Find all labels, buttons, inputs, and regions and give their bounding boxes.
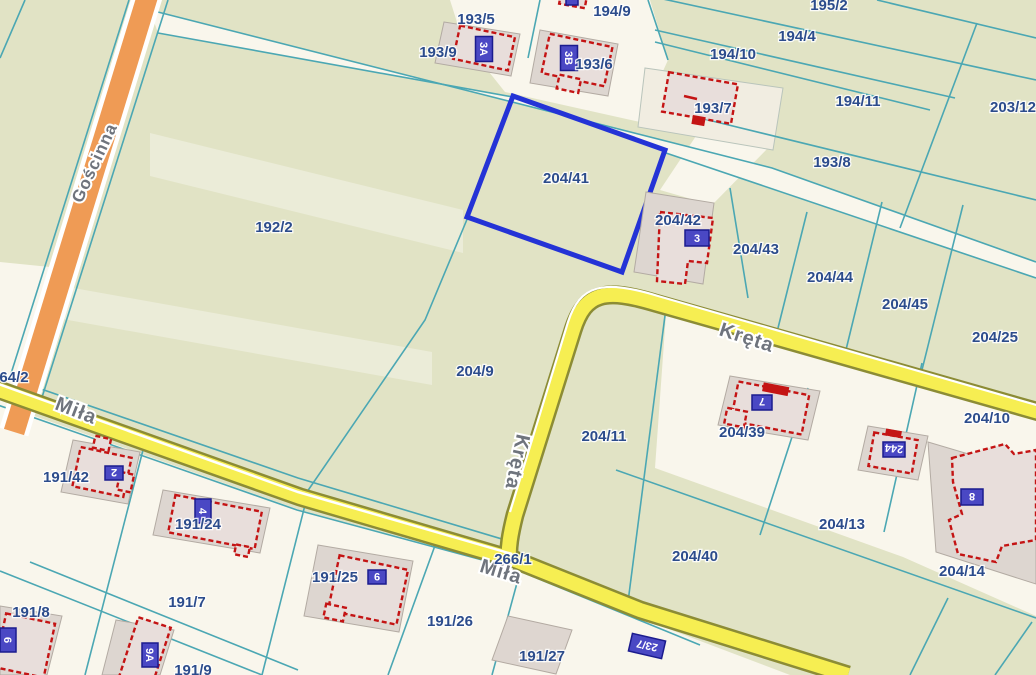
parcel-label-204-9: 204/9 <box>456 363 494 380</box>
parcel-label-194-11: 194/11 <box>835 93 880 110</box>
parcel-label-204-40: 204/40 <box>672 548 718 565</box>
building-number: 9A <box>143 648 155 662</box>
cadastral-map-viewport[interactable]: 3A 3B 3 2 4 9 <box>0 0 1036 675</box>
parcel-label-194-4: 194/4 <box>778 28 816 45</box>
parcel-label-264-2: 64/2 <box>0 369 29 386</box>
building-number: 244 <box>884 441 904 455</box>
parcel-label-203-12: 203/12 <box>990 99 1036 116</box>
parcel-label-191-7: 191/7 <box>168 594 206 611</box>
parcel-label-191-25: 191/25 <box>312 569 358 586</box>
parcel-label-204-42: 204/42 <box>655 212 701 229</box>
parcel-label-204-25: 204/25 <box>972 329 1018 346</box>
parcel-label-193-5: 193/5 <box>457 11 495 28</box>
building-number: 3B <box>562 51 574 65</box>
parcel-label-204-41: 204/41 <box>543 170 589 187</box>
parcel-label-204-44: 204/44 <box>807 269 854 286</box>
parcel-label-193-9: 193/9 <box>419 44 457 61</box>
parcel-label-191-26: 191/26 <box>427 613 473 630</box>
parcel-label-194-9: 194/9 <box>593 3 631 20</box>
parcel-label-193-7: 193/7 <box>694 100 732 117</box>
building-number: 8 <box>969 490 975 502</box>
parcel-label-193-8: 193/8 <box>813 154 851 171</box>
parcel-label-194-10: 194/10 <box>710 46 756 63</box>
parcel-label-191-8: 191/8 <box>12 604 50 621</box>
parcel-label-193-6: 193/6 <box>575 56 613 73</box>
parcel-label-204-45: 204/45 <box>882 296 928 313</box>
building-annex <box>234 544 250 556</box>
building-number-plate <box>566 0 578 5</box>
parcel-label-191-24: 191/24 <box>175 516 222 533</box>
building-number: 3A <box>477 42 489 56</box>
parcel-label-204-11: 204/11 <box>581 428 626 445</box>
building-number: 3 <box>694 233 700 245</box>
building-number: 2 <box>111 466 117 478</box>
parcel-label-195-2: 195/2 <box>810 0 848 14</box>
cadastral-map[interactable]: 3A 3B 3 2 4 9 <box>0 0 1036 675</box>
parcel-label-191-42: 191/42 <box>43 469 89 486</box>
building-number: 4 <box>196 508 208 515</box>
parcel-label-204-10: 204/10 <box>964 410 1010 427</box>
building-number: 6 <box>1 637 13 643</box>
parcel-label-204-14: 204/14 <box>939 563 986 580</box>
parcel-label-204-13: 204/13 <box>819 516 865 533</box>
building-number: 9 <box>374 570 380 582</box>
parcel-label-266-1: 266/1 <box>494 551 532 568</box>
parcel-label-192-2: 192/2 <box>255 219 293 236</box>
parcel-label-204-39: 204/39 <box>719 424 765 441</box>
parcel-label-191-27: 191/27 <box>519 648 565 665</box>
parcel-label-191-9: 191/9 <box>174 662 212 675</box>
building-number: 7 <box>759 395 765 407</box>
parcel-label-204-43: 204/43 <box>733 241 779 258</box>
building-annex <box>323 604 345 622</box>
